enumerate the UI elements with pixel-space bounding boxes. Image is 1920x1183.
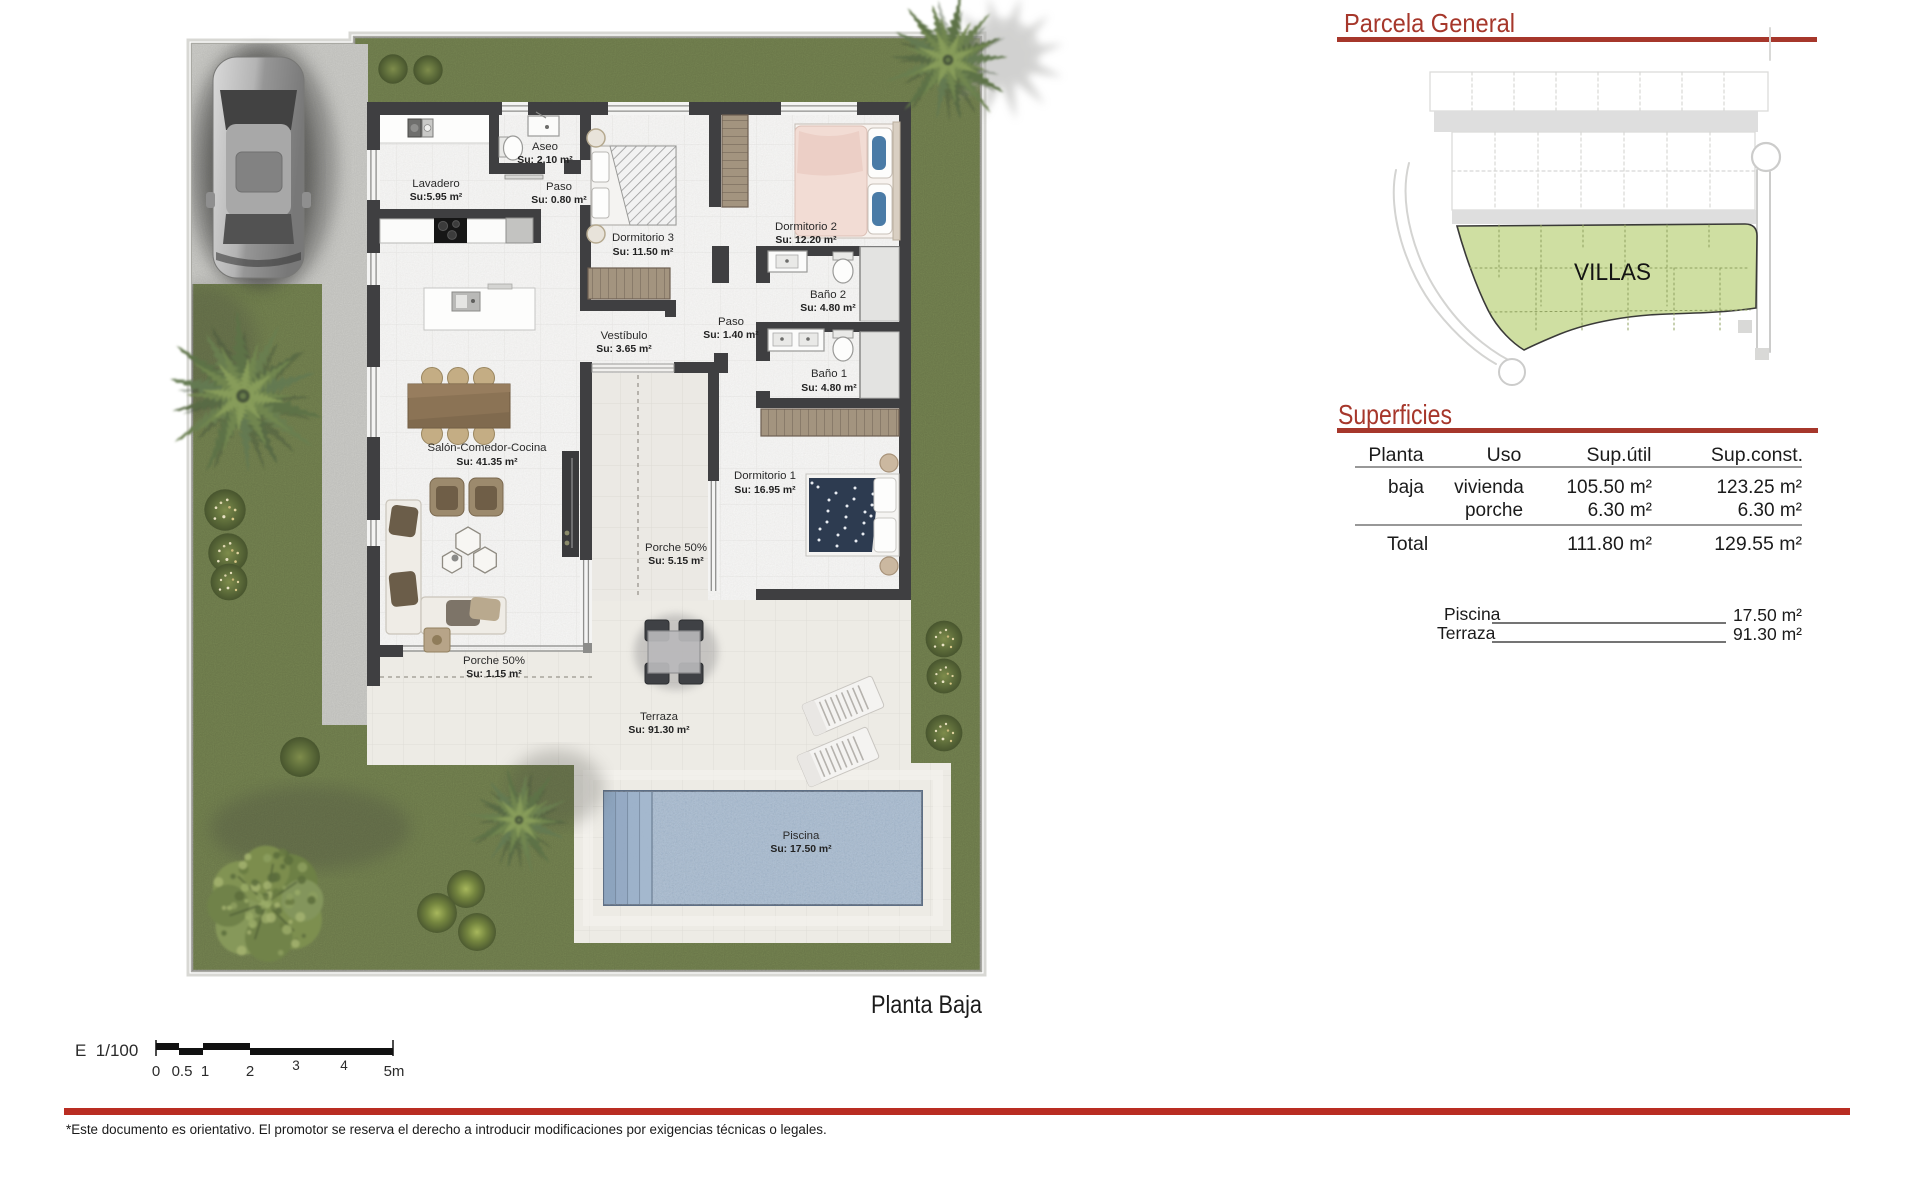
- svg-text:Su: 4.80 m²: Su: 4.80 m²: [800, 303, 856, 314]
- svg-text:Vestíbulo: Vestíbulo: [601, 330, 648, 342]
- svg-text:Paso: Paso: [718, 316, 744, 328]
- svg-text:Su: 2.10 m²: Su: 2.10 m²: [517, 155, 573, 166]
- svg-text:17.50 m²: 17.50 m²: [1733, 605, 1802, 625]
- svg-text:baja: baja: [1388, 477, 1424, 498]
- svg-text:Su: 3.65 m²: Su: 3.65 m²: [596, 344, 652, 355]
- svg-text:Baño 1: Baño 1: [811, 368, 847, 380]
- svg-text:Su: 5.15 m²: Su: 5.15 m²: [648, 556, 704, 567]
- svg-text:Dormitorio 1: Dormitorio 1: [734, 470, 796, 482]
- svg-text:*Este documento es orientativo: *Este documento es orientativo. El promo…: [66, 1122, 827, 1137]
- svg-text:Su: 12.20 m²: Su: 12.20 m²: [775, 235, 837, 246]
- svg-text:vivienda: vivienda: [1454, 477, 1524, 498]
- svg-text:Porche 50%: Porche 50%: [463, 655, 525, 667]
- svg-text:Sup.útil: Sup.útil: [1586, 444, 1651, 466]
- svg-text:Uso: Uso: [1487, 444, 1522, 466]
- svg-text:Aseo: Aseo: [532, 141, 558, 153]
- svg-text:Terraza: Terraza: [640, 711, 679, 723]
- svg-text:Piscina: Piscina: [783, 830, 820, 842]
- svg-text:Planta: Planta: [1368, 444, 1423, 466]
- svg-text:1: 1: [201, 1063, 209, 1080]
- svg-text:Su: 91.30 m²: Su: 91.30 m²: [628, 725, 690, 736]
- svg-text:105.50 m²: 105.50 m²: [1566, 477, 1652, 498]
- svg-text:4: 4: [340, 1058, 348, 1073]
- svg-text:Piscina: Piscina: [1444, 604, 1501, 624]
- svg-text:Planta Baja: Planta Baja: [871, 991, 982, 1019]
- svg-text:91.30 m²: 91.30 m²: [1733, 624, 1802, 644]
- svg-text:Su: 1.15 m²: Su: 1.15 m²: [466, 669, 522, 680]
- svg-text:Paso: Paso: [546, 181, 572, 193]
- svg-text:Parcela General: Parcela General: [1344, 8, 1515, 38]
- svg-text:2: 2: [246, 1063, 254, 1080]
- svg-text:Terraza: Terraza: [1437, 623, 1496, 643]
- svg-text:Superficies: Superficies: [1338, 399, 1452, 430]
- svg-text:E 1/100: E 1/100: [75, 1041, 138, 1060]
- svg-text:0: 0: [152, 1063, 160, 1080]
- svg-text:Total: Total: [1387, 533, 1428, 555]
- svg-text:Su: 1.40 m²: Su: 1.40 m²: [703, 330, 759, 341]
- svg-text:Su: 0.80 m²: Su: 0.80 m²: [531, 195, 587, 206]
- svg-text:Porche 50%: Porche 50%: [645, 542, 707, 554]
- svg-text:VILLAS: VILLAS: [1574, 259, 1651, 286]
- svg-text:Salón-Comedor-Cocina: Salón-Comedor-Cocina: [427, 442, 547, 454]
- svg-text:5m: 5m: [384, 1063, 405, 1080]
- svg-text:Su: 4.80 m²: Su: 4.80 m²: [801, 383, 857, 394]
- svg-text:129.55 m²: 129.55 m²: [1714, 533, 1802, 555]
- svg-text:Su:5.95 m²: Su:5.95 m²: [410, 192, 463, 203]
- svg-text:Sup.const.: Sup.const.: [1711, 444, 1803, 466]
- svg-text:Su: 41.35 m²: Su: 41.35 m²: [456, 457, 518, 468]
- svg-text:Baño 2: Baño 2: [810, 289, 846, 301]
- svg-text:6.30 m²: 6.30 m²: [1588, 500, 1652, 521]
- svg-text:123.25 m²: 123.25 m²: [1716, 477, 1802, 498]
- svg-text:3: 3: [292, 1058, 300, 1073]
- svg-text:Su: 16.95 m²: Su: 16.95 m²: [734, 485, 796, 496]
- svg-text:Dormitorio 2: Dormitorio 2: [775, 221, 837, 233]
- svg-text:Su: 17.50 m²: Su: 17.50 m²: [770, 844, 832, 855]
- svg-text:6.30 m²: 6.30 m²: [1738, 500, 1802, 521]
- svg-text:Lavadero: Lavadero: [412, 178, 460, 190]
- svg-text:0.5: 0.5: [172, 1063, 193, 1080]
- svg-text:111.80 m²: 111.80 m²: [1567, 533, 1652, 555]
- svg-text:Su: 11.50 m²: Su: 11.50 m²: [613, 247, 674, 258]
- svg-text:Dormitorio 3: Dormitorio 3: [612, 232, 674, 244]
- svg-text:porche: porche: [1465, 500, 1523, 521]
